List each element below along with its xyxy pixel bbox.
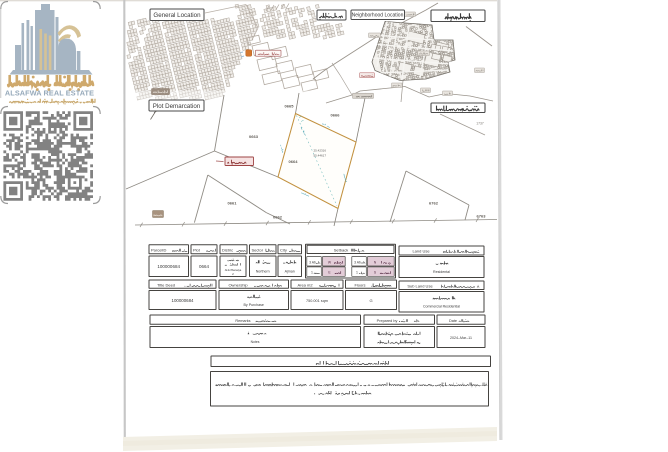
svg-text:Area m2: Area m2 — [297, 282, 313, 287]
svg-text:100000684: 100000684 — [172, 298, 195, 303]
svg-text:Neighborhood Location: Neighborhood Location — [352, 13, 404, 19]
svg-text:ALSAFWA REAL ESTATE: ALSAFWA REAL ESTATE — [5, 88, 94, 97]
svg-text:0662: 0662 — [273, 215, 283, 220]
svg-text:Commercial Residential: Commercial Residential — [423, 305, 460, 309]
svg-text:Prepared by: Prepared by — [377, 319, 398, 323]
svg-text:Plot Demarcation: Plot Demarcation — [153, 103, 201, 110]
svg-text:Land Use: Land Use — [412, 249, 430, 254]
svg-text:6763: 6763 — [477, 214, 487, 219]
svg-text:3 Ab: 3 Ab — [354, 260, 361, 264]
svg-text:1: 1 — [356, 271, 358, 275]
svg-text:55.44617: 55.44617 — [314, 154, 327, 158]
svg-text:Title Deed: Title Deed — [157, 282, 175, 287]
svg-text:Residental: Residental — [433, 270, 450, 274]
svg-text:3 Ab: 3 Ab — [309, 260, 316, 264]
svg-text:0664: 0664 — [199, 264, 210, 269]
svg-text:Northern: Northern — [256, 270, 270, 274]
svg-text:Setback: Setback — [334, 247, 348, 252]
svg-text:Ajman: Ajman — [285, 270, 295, 274]
svg-text:1737: 1737 — [476, 122, 484, 126]
svg-text:2024–Mar–11: 2024–Mar–11 — [450, 336, 472, 340]
svg-text:Date: Date — [449, 319, 457, 323]
svg-text:By Purchase: By Purchase — [244, 303, 264, 307]
svg-text:City: City — [280, 248, 287, 253]
svg-text:General Location: General Location — [153, 12, 201, 19]
svg-text:Sector: Sector — [252, 248, 264, 253]
svg-text:0666: 0666 — [331, 113, 341, 118]
svg-text:0664: 0664 — [289, 159, 299, 164]
svg-text:100000684: 100000684 — [157, 264, 180, 269]
svg-text:Floors: Floors — [354, 282, 365, 287]
svg-text:Notes: Notes — [251, 340, 260, 344]
svg-text:Plot: Plot — [193, 248, 201, 253]
svg-text:Sub Land Use: Sub Land Use — [407, 283, 433, 288]
svg-text:25.42316: 25.42316 — [314, 149, 327, 153]
svg-text:0663: 0663 — [249, 134, 259, 139]
svg-text:1: 1 — [311, 271, 313, 275]
svg-text:750.001 sqm: 750.001 sqm — [306, 299, 328, 303]
svg-text:0661: 0661 — [228, 201, 238, 206]
svg-text:G: G — [369, 298, 372, 303]
svg-text:0665: 0665 — [285, 104, 295, 109]
svg-text:Remarks: Remarks — [235, 319, 250, 323]
svg-text:6762: 6762 — [429, 201, 439, 206]
svg-text:Distric: Distric — [222, 248, 233, 253]
svg-text:ParcelID: ParcelID — [151, 248, 166, 253]
svg-text:Ownership: Ownership — [228, 282, 248, 287]
